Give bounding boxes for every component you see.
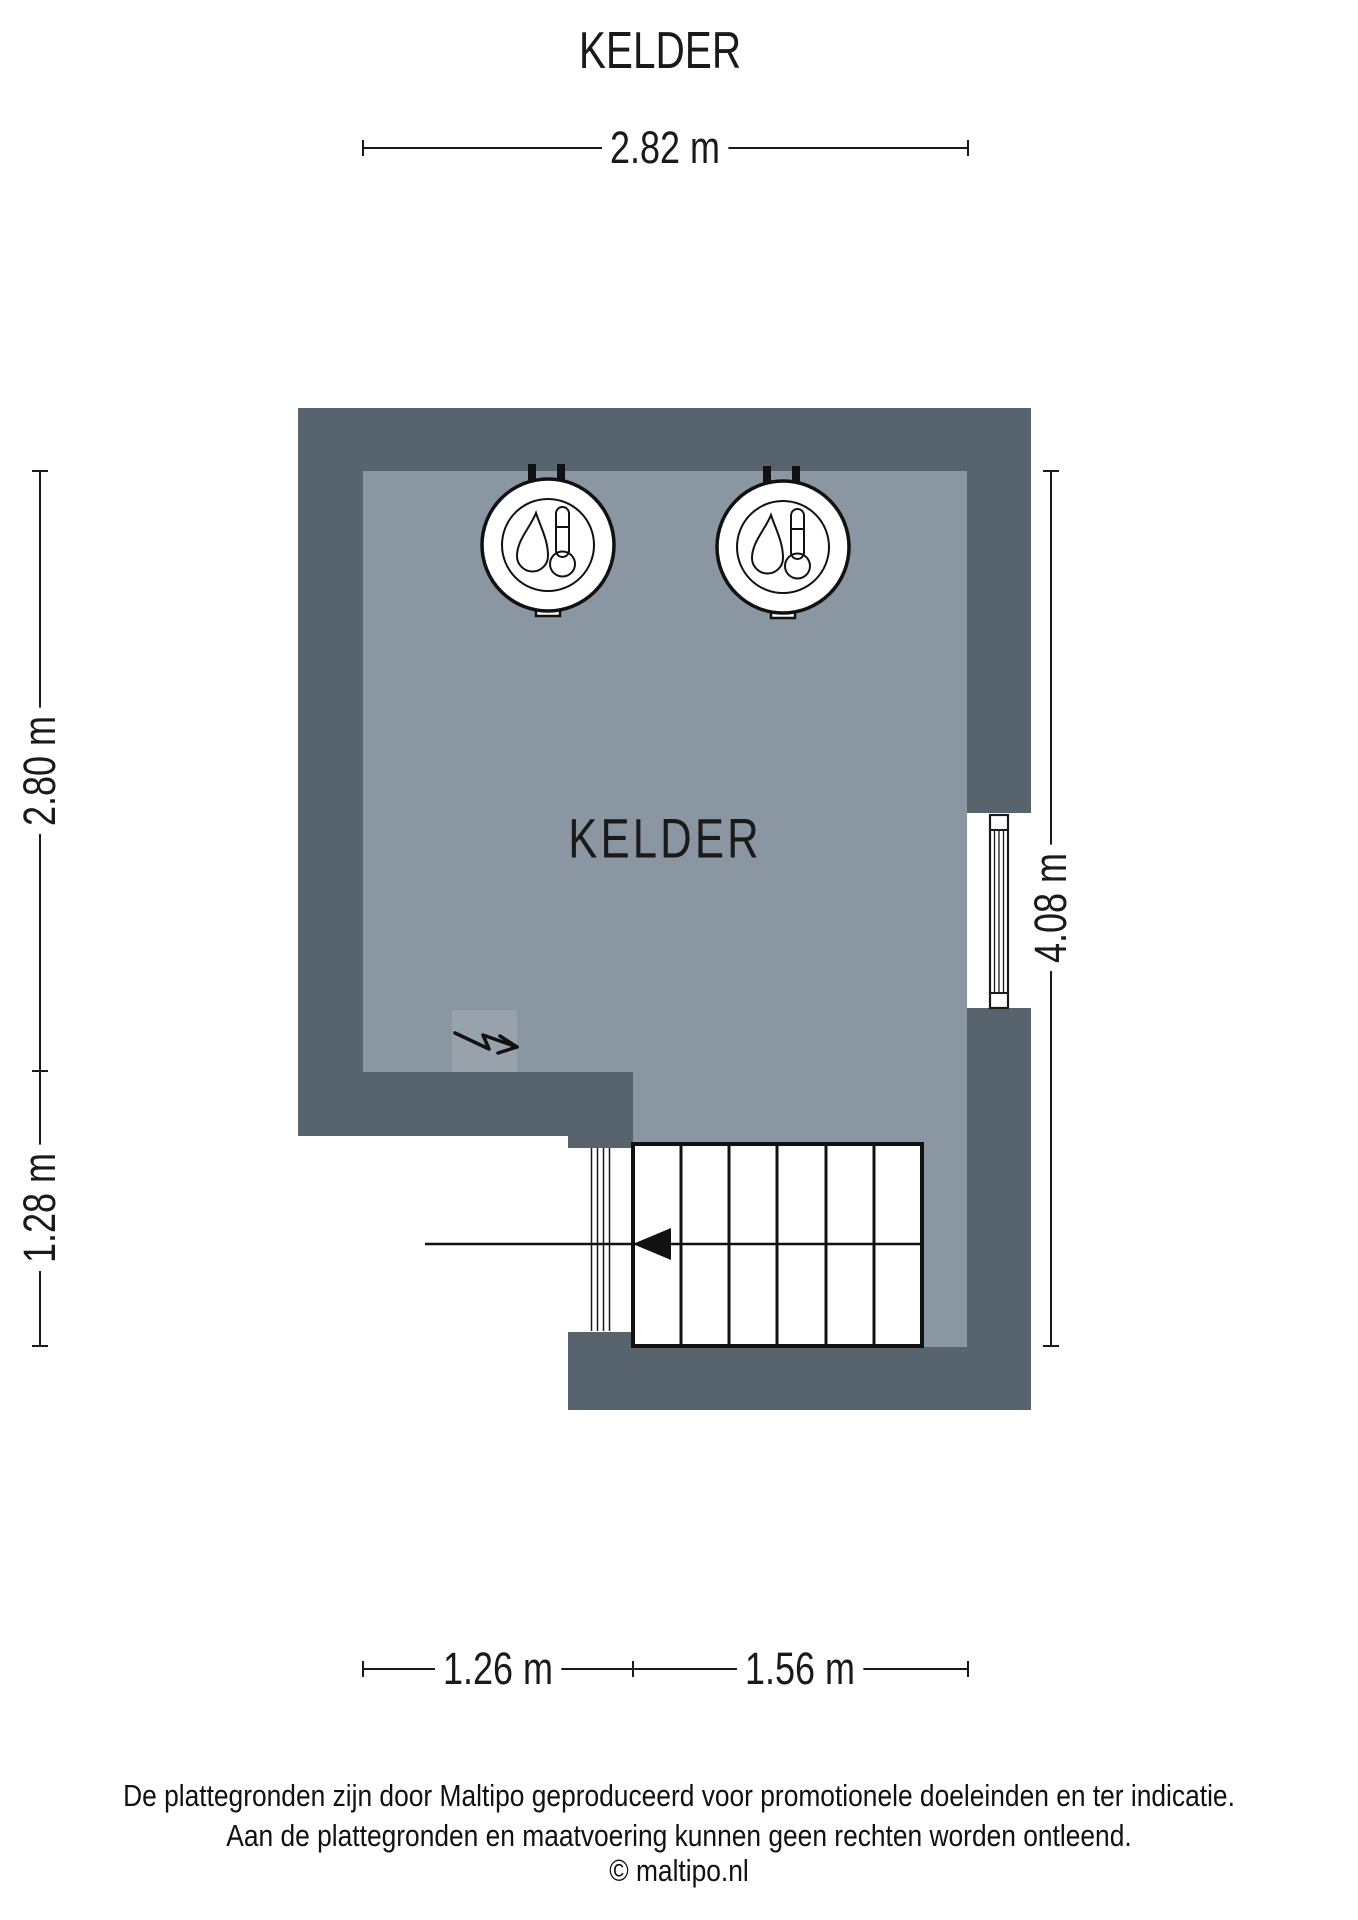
boiler-mount-tab	[763, 466, 771, 482]
floor-main	[363, 471, 967, 1072]
wall-right-lower	[967, 1008, 1031, 1410]
wall-door-jamb	[568, 1136, 633, 1148]
dimension-label-right: 4.08 m	[1024, 845, 1078, 971]
floorplan-page: KELDER KELDER 2.82 m 2.80 m 1.28 m 4.08 …	[0, 0, 1358, 1920]
footer-disclaimer-line2: Aan de plattegronden en maatvoering kunn…	[102, 1818, 1256, 1854]
dimension-label-top: 2.82 m	[602, 121, 728, 175]
dimension-label-bottom-left: 1.26 m	[435, 1642, 561, 1696]
wall-stairwell-block	[568, 1332, 633, 1410]
wall-right-upper	[967, 408, 1031, 813]
wall-top	[298, 408, 1031, 471]
footer-disclaimer-line1: De plattegronden zijn door Maltipo gepro…	[102, 1778, 1256, 1814]
page-title: KELDER	[579, 21, 741, 81]
dimension-label-left-lower: 1.28 m	[13, 1145, 67, 1271]
boiler-mount-tab	[528, 464, 536, 480]
stairs-icon	[425, 1144, 922, 1346]
boiler-mount-tab	[557, 464, 565, 480]
footer-copyright: © maltipo.nl	[102, 1853, 1256, 1889]
dimension-label-bottom-right: 1.56 m	[737, 1642, 863, 1696]
boiler-mount-tab	[792, 466, 800, 482]
dimension-label-left-upper: 2.80 m	[13, 708, 67, 834]
wall-bottom-left	[298, 1072, 633, 1136]
window-icon	[990, 815, 1008, 1008]
room-label: KELDER	[568, 806, 762, 871]
opening-lines	[592, 1148, 610, 1331]
wall-left	[298, 408, 363, 1136]
floorplan-drawing	[0, 0, 1358, 1920]
